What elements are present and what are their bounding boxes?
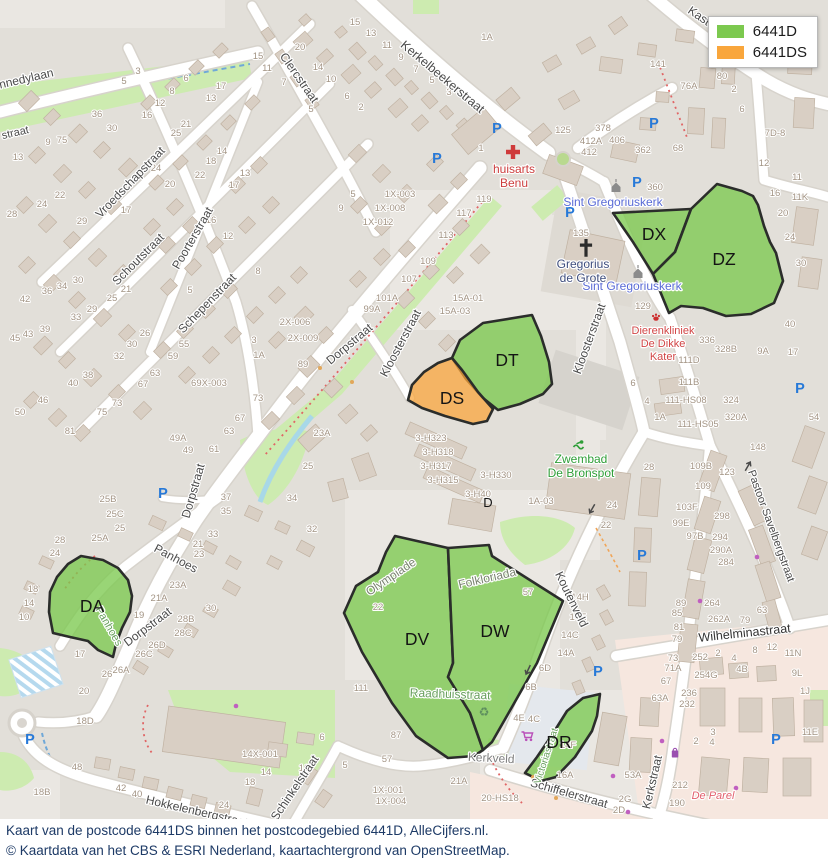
house-number-label: 99A [364, 304, 382, 315]
poi-label: huisarts [493, 162, 535, 176]
house-number-label: 119 [476, 194, 491, 205]
house-number-label: 11E [802, 727, 818, 738]
building [793, 97, 815, 128]
house-number-label: 4 [709, 737, 714, 748]
house-number-label: 362 [635, 145, 651, 156]
house-number-label: 89 [298, 359, 309, 370]
house-number-label: 2G [619, 794, 632, 805]
house-number-label: 2 [693, 736, 698, 747]
house-number-label: 294 [712, 532, 728, 543]
house-number-label: 1X-012 [363, 217, 394, 228]
house-number-label: 6D [539, 663, 551, 674]
house-number-label: 111-HS08 [665, 395, 706, 406]
house-number-label: 45 [10, 333, 21, 344]
house-number-label: 9L [792, 668, 803, 679]
house-number-label: 14 [313, 62, 324, 73]
house-number-label: 232 [679, 699, 695, 710]
house-number-label: 111D [678, 355, 699, 366]
map-svg[interactable]: PPPPPPPPPPP♻ 1513119753201410621A1511755… [0, 0, 828, 819]
house-number-label: 1 [478, 143, 483, 154]
house-number-label: 17 [75, 649, 86, 660]
house-number-label: 14X-001 [242, 749, 278, 760]
building [638, 477, 660, 517]
house-number-label: 13 [206, 93, 217, 104]
building [699, 67, 716, 88]
house-number-label: 28C [174, 628, 192, 639]
house-number-label: 18B [34, 787, 51, 798]
house-number-label: 23A [314, 428, 332, 439]
house-number-label: 6 [319, 732, 324, 743]
house-number-label: 290A [710, 545, 733, 556]
house-number-label: 14 [24, 598, 35, 609]
house-number-label: 42 [20, 294, 31, 305]
house-number-label: 1J [800, 686, 810, 697]
house-number-label: 68 [673, 143, 684, 154]
house-number-label: 24 [607, 500, 618, 511]
house-number-label: 3-H315 [427, 475, 458, 486]
building [599, 57, 623, 74]
building [656, 92, 670, 103]
poi-label: De Parel [692, 790, 735, 802]
house-number-label: 97B [687, 531, 704, 542]
house-number-label: 57 [523, 587, 534, 598]
house-number-label: 18D [76, 716, 94, 727]
house-number-label: 6 [344, 91, 349, 102]
house-number-label: 1A [654, 412, 666, 423]
legend-swatch-6441ds [717, 46, 744, 59]
legend-item-6441d: 6441D [717, 23, 807, 40]
building [742, 757, 769, 792]
house-number-label: 101A [376, 293, 399, 304]
poi-label: De Bronspot [548, 466, 615, 480]
poi-label: De Dikke [641, 338, 686, 350]
house-number-label: 11N [785, 648, 802, 659]
house-number-label: 148 [750, 442, 766, 453]
house-number-label: 360 [647, 182, 663, 193]
house-number-label: 264 [704, 598, 720, 609]
house-number-label: 190 [669, 798, 685, 809]
house-number-label: 141 [650, 59, 666, 70]
house-number-label: 22 [195, 170, 206, 181]
postcode-map-page: PPPPPPPPPPP♻ 1513119753201410621A1511755… [0, 0, 828, 861]
house-number-label: 3-H317 [420, 461, 451, 472]
house-number-label: 34 [57, 281, 68, 292]
house-number-label: 11 [382, 40, 392, 51]
house-number-label: 40 [132, 789, 143, 800]
parking-icon: P [637, 548, 647, 564]
area-label-dv: DV [405, 629, 430, 649]
caption-line1: Kaart van de postcode 6441DS binnen het … [6, 821, 828, 841]
area-label-da: DA [80, 596, 105, 616]
house-number-label: 40 [68, 378, 79, 389]
house-number-label: 109B [690, 461, 712, 472]
house-number-label: 8 [752, 645, 757, 656]
house-number-label: 117 [456, 208, 471, 219]
poi-label: Zwembad [555, 452, 608, 466]
house-number-label: 29 [87, 304, 98, 315]
house-number-label: 1X-008 [375, 203, 406, 214]
house-number-label: 63 [757, 605, 768, 616]
house-number-label: 3 [251, 335, 256, 346]
house-number-label: 25C [106, 509, 124, 520]
parking-icon: P [25, 732, 35, 748]
house-number-label: 15A-03 [440, 306, 471, 317]
house-number-label: 1A-03 [528, 496, 553, 507]
house-number-label: 59 [168, 351, 179, 362]
legend-swatch-6441d [717, 25, 744, 38]
house-number-label: 67 [661, 676, 672, 687]
house-number-label: 12 [767, 642, 778, 653]
house-number-label: 135 [573, 228, 589, 239]
street-label: Raadhuisstraat [410, 686, 492, 703]
house-number-label: 38 [83, 370, 94, 381]
legend-item-6441ds: 6441DS [717, 44, 807, 61]
house-number-label: 406 [609, 135, 625, 146]
building [296, 732, 314, 745]
house-number-label: 81 [674, 622, 685, 633]
house-number-label: 50 [15, 407, 26, 418]
house-number-label: 20 [295, 42, 306, 53]
house-number-label: 1X-004 [376, 796, 407, 807]
house-number-label: 20 [778, 208, 789, 219]
poi-label: Sint Gregoriuskerk [563, 195, 663, 209]
house-number-label: 63 [150, 368, 161, 379]
area-label-dr: DR [546, 732, 571, 752]
house-number-label: 3-H323 [415, 433, 446, 444]
house-number-label: 2X-006 [280, 317, 311, 328]
house-number-label: 328B [715, 344, 737, 355]
house-number-label: 3-H318 [422, 447, 453, 458]
poi-label: Gregorius [557, 257, 610, 271]
area-label-dw: DW [480, 621, 510, 641]
building [687, 108, 704, 135]
house-number-label: 28 [7, 209, 18, 220]
house-number-label: 336 [699, 335, 715, 346]
house-number-label: 73 [112, 398, 123, 409]
house-number-label: 103F [676, 502, 698, 513]
building [675, 29, 694, 43]
legend-label-6441d: 6441D [753, 23, 797, 40]
house-number-label: 80 [717, 71, 728, 82]
house-number-label: 320A [725, 412, 748, 423]
house-number-label: 12 [223, 231, 234, 242]
house-number-label: 22 [373, 602, 384, 613]
house-number-label: 23 [194, 549, 205, 560]
house-number-label: 9A [757, 346, 769, 357]
mini-roundabout [556, 152, 570, 166]
house-number-label: 23A [170, 580, 188, 591]
house-number-label: 54 [809, 412, 820, 423]
house-number-label: 26A [113, 665, 131, 676]
area-label-dx: DX [642, 224, 667, 244]
house-number-label: 63A [652, 693, 670, 704]
house-number-label: 2 [731, 84, 736, 95]
parking-icon: P [795, 381, 805, 397]
house-number-label: 14C [561, 630, 579, 641]
house-number-label: 16 [770, 188, 781, 199]
house-number-label: 5 [187, 285, 192, 296]
house-number-label: 28 [55, 535, 66, 546]
house-number-label: 35 [221, 506, 232, 517]
house-number-label: 79 [740, 615, 751, 626]
house-number-label: 298 [714, 511, 730, 522]
house-number-label: 7D-8 [765, 128, 786, 139]
house-number-label: 13 [240, 168, 251, 179]
house-number-label: 43 [23, 329, 34, 340]
legend: 6441D 6441DS [708, 16, 818, 68]
house-number-label: 30 [73, 275, 84, 286]
house-number-label: 32 [114, 351, 125, 362]
building [739, 698, 762, 732]
house-number-label: 7 [413, 64, 418, 75]
house-number-label: 46 [38, 395, 49, 406]
house-number-label: 284 [718, 557, 734, 568]
house-number-label: 11 [792, 172, 802, 183]
house-number-label: 262A [708, 614, 731, 625]
house-number-label: 20 [79, 686, 90, 697]
building [711, 118, 726, 149]
house-number-label: 111B [679, 377, 700, 388]
house-number-label: 8 [255, 266, 260, 277]
house-number-label: 17 [216, 81, 227, 92]
house-number-label: 111-HS05 [677, 419, 718, 430]
house-number-label: 63 [224, 426, 235, 437]
house-number-label: 37 [221, 492, 232, 503]
building [637, 43, 656, 57]
house-number-label: 324 [723, 395, 739, 406]
house-number-label: 1X-003 [385, 189, 416, 200]
house-number-label: 49A [170, 433, 188, 444]
house-number-label: 20 [165, 179, 176, 190]
house-number-label: 22 [601, 520, 612, 531]
house-number-label: 6 [183, 73, 188, 84]
house-number-label: 67 [138, 379, 149, 390]
area-label-dz: DZ [712, 249, 736, 269]
street-label: Kerkveld [468, 750, 515, 766]
poi-dot [611, 774, 616, 779]
parking-icon: P [158, 486, 168, 502]
building [792, 207, 819, 246]
house-number-label: 53A [625, 770, 643, 781]
house-number-label: 24 [37, 199, 48, 210]
house-number-label: 129 [635, 301, 651, 312]
poi-label: Benu [500, 176, 528, 190]
house-number-label: 412A [580, 136, 603, 147]
house-number-label: 5 [342, 760, 347, 771]
house-number-label: 17 [121, 205, 132, 216]
house-number-label: 2D [613, 805, 625, 816]
house-number-label: 15A-01 [453, 293, 484, 304]
house-number-label: 4B [736, 664, 748, 675]
building [783, 758, 811, 796]
house-number-label: 252 [692, 652, 708, 663]
house-number-label: 42 [116, 783, 127, 794]
house-number-label: 9 [398, 52, 403, 63]
house-number-label: 48 [72, 762, 83, 773]
house-number-label: 378 [595, 123, 611, 134]
recycle-glyph: ♻ [479, 705, 490, 719]
house-number-label: 61 [209, 444, 220, 455]
house-number-label: 3-H330 [480, 470, 511, 481]
house-number-label: 109 [695, 481, 711, 492]
house-number-label: 33 [208, 529, 219, 540]
house-number-label: 26D [148, 640, 166, 651]
house-number-label: 236 [681, 688, 697, 699]
house-number-label: 24 [50, 548, 61, 559]
house-number-label: 30 [206, 603, 217, 614]
house-number-label: 12 [155, 98, 166, 109]
house-number-label: 57 [382, 754, 393, 765]
area-label-ds: DS [440, 388, 464, 408]
parking-icon: P [593, 664, 603, 680]
house-number-label: 125 [555, 125, 571, 136]
house-number-label: 19 [134, 610, 145, 621]
poi-dot [660, 739, 665, 744]
house-number-label: 26 [140, 328, 151, 339]
legend-label-6441ds: 6441DS [753, 44, 807, 61]
house-number-label: 85 [672, 608, 683, 619]
area-label-d: D [483, 495, 492, 510]
poi-dot [234, 704, 239, 709]
house-number-label: 1X-001 [373, 785, 404, 796]
house-number-label: 2 [358, 102, 363, 113]
house-number-label: 1A [481, 32, 493, 43]
building [628, 572, 646, 607]
house-number-label: 111 [354, 683, 368, 694]
house-number-label: 14A [558, 648, 576, 659]
house-number-label: 67 [235, 413, 246, 424]
house-number-label: 13 [366, 28, 377, 39]
house-number-label: 2 [715, 648, 720, 659]
house-number-label: 18 [245, 777, 256, 788]
house-number-label: 30 [127, 339, 138, 350]
house-number-label: 9 [45, 137, 50, 148]
house-number-label: 14 [261, 767, 272, 778]
house-number-label: 412 [581, 147, 597, 158]
house-number-label: 79 [672, 634, 683, 645]
house-number-label: 39 [40, 324, 51, 335]
house-number-label: 24 [785, 232, 796, 243]
house-number-label: 11 [262, 63, 272, 74]
house-number-label: 6B [525, 682, 537, 693]
house-number-label: 10 [326, 74, 337, 85]
area-label-dt: DT [495, 350, 519, 370]
house-number-label: 14 [217, 146, 228, 157]
house-number-label: 4E [513, 713, 525, 724]
house-number-label: 25 [303, 461, 314, 472]
house-number-label: 25B [100, 494, 117, 505]
poi-label: Dierenkliniek [632, 325, 695, 337]
house-number-label: 75 [57, 135, 68, 146]
house-number-label: 10 [19, 612, 30, 623]
house-number-label: 30 [107, 123, 118, 134]
house-number-label: 18 [28, 584, 39, 595]
building [757, 666, 777, 682]
house-number-label: 113 [438, 230, 453, 241]
house-number-label: 9 [338, 203, 343, 214]
house-number-label: 109 [420, 256, 436, 267]
parking-icon: P [432, 151, 442, 167]
house-number-label: 73 [253, 393, 264, 404]
house-number-label: 4 [644, 396, 649, 407]
house-number-label: 69X-003 [191, 378, 227, 389]
house-number-label: 123 [719, 467, 735, 478]
house-number-label: 5 [308, 104, 313, 115]
house-number-label: 11K [792, 192, 809, 203]
house-number-label: 55 [179, 339, 190, 350]
house-number-label: 30 [796, 258, 807, 269]
map-canvas[interactable]: PPPPPPPPPPP♻ 1513119753201410621A1511755… [0, 0, 828, 819]
house-number-label: 4 [731, 653, 736, 664]
house-number-label: 15 [253, 51, 264, 62]
parking-icon: P [632, 175, 642, 191]
poi-dot [350, 380, 354, 384]
house-number-label: 7 [281, 77, 286, 88]
house-number-label: 34 [287, 493, 298, 504]
poi-dot [318, 366, 322, 370]
house-number-label: 12 [759, 158, 770, 169]
house-number-label: 33 [71, 312, 82, 323]
house-number-label: 3 [135, 66, 140, 77]
house-number-label: 2X-009 [288, 333, 319, 344]
poi-dot [698, 599, 703, 604]
house-number-label: 17 [788, 347, 799, 358]
house-number-label: 99E [673, 518, 690, 529]
house-number-label: 40 [785, 319, 796, 330]
house-number-label: 8 [169, 86, 174, 97]
house-number-label: 17 [229, 180, 240, 191]
house-number-label: 254G [694, 670, 717, 681]
parking-icon: P [771, 732, 781, 748]
house-number-label: 49 [183, 445, 194, 456]
poi-label: de Grote [560, 271, 607, 285]
house-number-label: 21A [451, 776, 469, 787]
house-number-label: 76A [681, 81, 699, 92]
building [94, 757, 111, 770]
poi-label: Kater [650, 351, 677, 363]
house-number-label: 15 [350, 17, 361, 28]
house-number-label: 5 [121, 76, 126, 87]
house-number-label: 4C [528, 714, 540, 725]
house-number-label: 16A [557, 770, 575, 781]
poi-dot [755, 555, 760, 560]
house-number-label: 25 [107, 293, 118, 304]
house-number-label: 21A [151, 593, 169, 604]
house-number-label: 28 [644, 462, 655, 473]
house-number-label: 36 [42, 286, 53, 297]
house-number-label: 5 [350, 189, 355, 200]
house-number-label: 36 [92, 109, 103, 120]
house-number-label: 107 [401, 274, 417, 285]
house-number-label: 1A [253, 350, 265, 361]
map-caption: Kaart van de postcode 6441DS binnen het … [0, 819, 828, 861]
building [772, 698, 794, 737]
parking-icon: P [492, 121, 502, 137]
house-number-label: 81 [65, 426, 76, 437]
house-number-label: 6 [630, 378, 635, 389]
house-number-label: 13 [13, 152, 24, 163]
house-number-label: 16 [142, 110, 153, 121]
house-number-label: 212 [672, 780, 688, 791]
building [700, 688, 725, 726]
house-number-label: 25 [171, 128, 182, 139]
house-number-label: 28B [178, 614, 195, 625]
house-number-label: 25A [92, 533, 110, 544]
house-number-label: 22 [55, 190, 66, 201]
house-number-label: 26 [102, 669, 113, 680]
recycle-icon: ♻ [479, 705, 490, 719]
house-number-label: 29 [77, 216, 88, 227]
